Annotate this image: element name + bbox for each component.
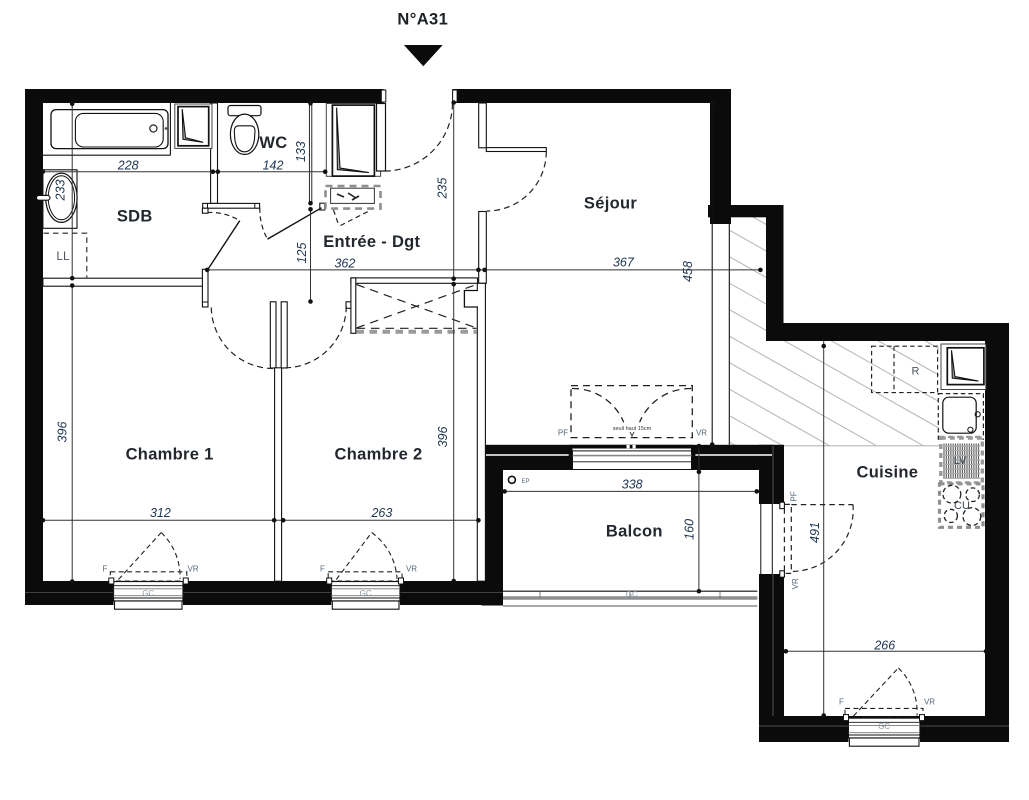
- svg-text:F: F: [839, 698, 844, 707]
- svg-text:CU: CU: [954, 500, 970, 512]
- svg-text:F: F: [103, 565, 108, 574]
- svg-text:VR: VR: [696, 429, 707, 438]
- svg-text:142: 142: [263, 158, 284, 172]
- svg-text:312: 312: [150, 506, 171, 520]
- svg-text:EP: EP: [521, 479, 529, 485]
- svg-text:Chambre 1: Chambre 1: [126, 446, 214, 464]
- svg-text:N°A31: N°A31: [397, 11, 448, 29]
- svg-text:263: 263: [370, 506, 392, 520]
- svg-text:GC: GC: [142, 589, 154, 598]
- svg-text:Séjour: Séjour: [584, 195, 637, 213]
- svg-text:266: 266: [873, 638, 895, 652]
- svg-text:F: F: [320, 565, 325, 574]
- svg-text:GC: GC: [878, 722, 890, 731]
- svg-text:SDB: SDB: [117, 207, 153, 225]
- svg-text:LV: LV: [954, 455, 967, 467]
- svg-text:VR: VR: [924, 698, 935, 707]
- svg-text:338: 338: [622, 477, 643, 491]
- svg-text:Cuisine: Cuisine: [857, 463, 919, 481]
- svg-text:R: R: [912, 366, 920, 378]
- svg-text:WC: WC: [259, 134, 287, 152]
- svg-text:235: 235: [435, 178, 449, 200]
- svg-text:125: 125: [295, 243, 309, 264]
- svg-text:seuil haut 15cm: seuil haut 15cm: [613, 426, 652, 432]
- svg-text:GC: GC: [626, 590, 638, 599]
- svg-text:396: 396: [56, 422, 70, 443]
- svg-text:362: 362: [334, 257, 355, 271]
- svg-text:PF: PF: [558, 429, 568, 438]
- svg-text:160: 160: [682, 519, 696, 540]
- svg-text:396: 396: [436, 427, 450, 448]
- svg-text:Entrée - Dgt: Entrée - Dgt: [323, 233, 420, 251]
- svg-text:233: 233: [54, 180, 68, 202]
- svg-text:133: 133: [294, 141, 308, 162]
- svg-text:VR: VR: [406, 565, 417, 574]
- svg-text:VR: VR: [187, 565, 198, 574]
- svg-text:367: 367: [613, 255, 635, 269]
- svg-text:458: 458: [681, 261, 695, 282]
- svg-text:491: 491: [808, 522, 822, 543]
- svg-text:LL: LL: [56, 249, 70, 263]
- svg-text:GC: GC: [360, 589, 372, 598]
- svg-text:VR: VR: [791, 578, 800, 589]
- svg-text:Balcon: Balcon: [606, 523, 663, 541]
- svg-text:228: 228: [117, 158, 139, 172]
- svg-text:Chambre 2: Chambre 2: [335, 446, 423, 464]
- svg-text:PF: PF: [790, 491, 799, 501]
